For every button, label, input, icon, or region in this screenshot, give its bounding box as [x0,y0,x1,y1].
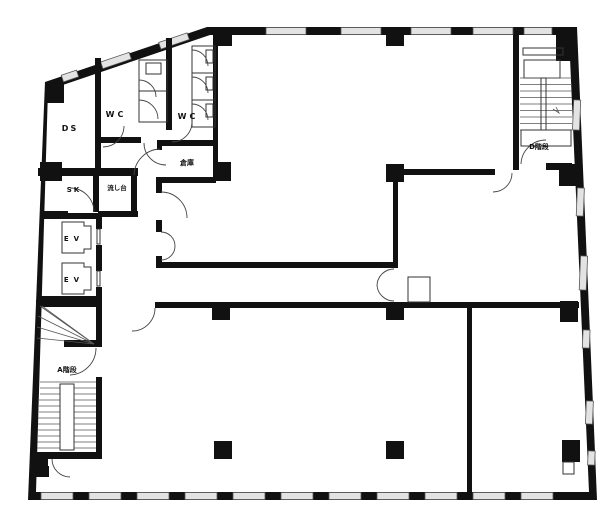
wall-storage-north [160,140,213,146]
window-segment [341,28,381,35]
window-segment [473,28,513,35]
wall-stair-a-south [30,452,102,459]
wall-sk-north [38,168,138,176]
window-segment [524,28,552,35]
label-stair-a: A階段 [57,365,76,374]
window-segment [582,330,590,348]
window-segment [572,100,580,130]
label-sk: SK [67,186,81,194]
window-segment [579,256,587,290]
column [214,441,232,459]
floorplan-canvas: DS WC WC 倉庫 SK 流し台 EV EV A階段 D階段 [0,0,600,529]
column [386,441,404,459]
wall-sink-south [98,211,138,217]
window-segment [377,493,409,500]
wall-ev-east [96,213,102,229]
window-segment [585,401,593,424]
wall-sk-divider [93,174,99,212]
window-segment [281,493,313,500]
floorplan-drawing: DS WC WC 倉庫 SK 流し台 EV EV A階段 D階段 [0,0,600,529]
window-segment [41,493,73,500]
window-segment [185,493,217,500]
column [386,27,404,46]
column [45,82,64,103]
label-wc-left: WC [106,110,127,119]
window-segment [576,188,584,216]
wall-room-b-west [393,170,398,268]
label-storage: 倉庫 [179,158,194,167]
wall-corner-block [33,466,49,477]
wall-storage-south [156,177,216,183]
wall-ev-east [96,245,102,271]
window-segment [411,28,451,35]
wall-stair-a-east [96,300,102,347]
wall-room-a-west [156,220,162,232]
window-segment [521,493,553,500]
wall-lower-divider [467,307,472,493]
stair-rail [60,384,74,450]
label-sink: 流し台 [107,183,127,192]
wall-sink-east [131,174,137,214]
column [556,27,577,61]
window-segment [473,493,505,500]
window-segment [89,493,121,500]
label-stair-d: D階段 [529,142,549,151]
window-segment [588,451,596,465]
wall-ev-north [44,213,102,219]
window-segment [137,493,169,500]
wall-room-b-north [400,169,495,175]
wall-room-a-west [156,180,162,193]
window-segment [425,493,457,500]
label-wc-right: WC [178,112,199,121]
wall-storage-west-stub [157,140,162,150]
wall-stair-d-south [546,163,572,170]
wall-corridor-south [155,302,579,308]
wall-stair-a-east [96,377,102,457]
label-elevator-top: EV [64,235,84,243]
window-segment [233,493,265,500]
window-segment [329,493,361,500]
wall-ds-east [95,58,101,174]
label-elevator-bottom: EV [64,276,84,284]
label-ds: DS [62,124,78,133]
wall-stair-d-west [513,35,519,170]
column [562,440,580,462]
wall-stair-a-north [36,300,102,307]
window-segment [266,28,306,35]
wall-corridor-north [156,262,398,268]
